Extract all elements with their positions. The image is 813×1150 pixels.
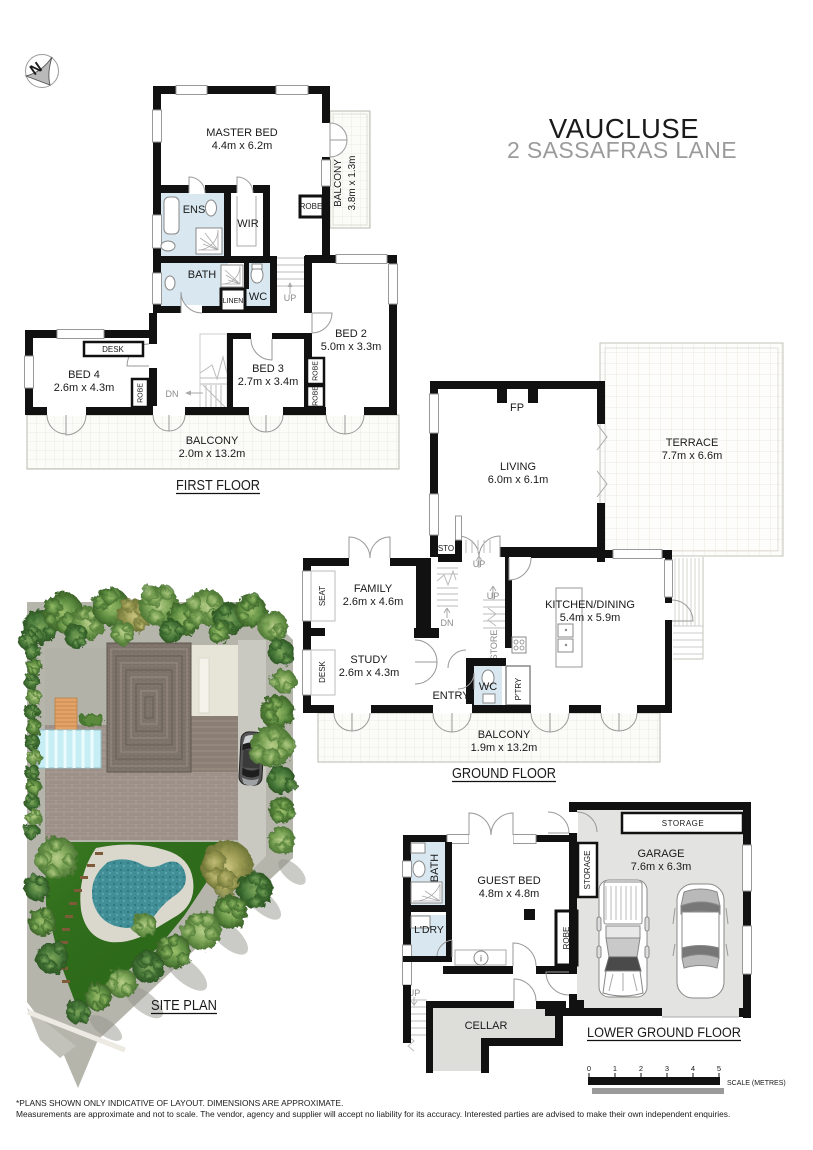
svg-text:LOWER GROUND FLOOR: LOWER GROUND FLOOR <box>587 1024 741 1040</box>
svg-text:WC: WC <box>249 291 267 303</box>
svg-text:0: 0 <box>587 1064 591 1073</box>
svg-text:SCALE (METRES): SCALE (METRES) <box>727 1080 786 1087</box>
svg-text:BALCONY: BALCONY <box>186 435 239 447</box>
svg-text:2: 2 <box>639 1064 643 1073</box>
svg-text:Measurements are approximate a: Measurements are approximate and not to … <box>16 1109 730 1119</box>
svg-text:BALCONY: BALCONY <box>333 159 344 207</box>
svg-text:ENTRY: ENTRY <box>432 690 470 702</box>
svg-text:ROBE: ROBE <box>313 386 320 406</box>
svg-text:ROBE: ROBE <box>313 361 320 381</box>
svg-text:ENS: ENS <box>183 204 206 216</box>
svg-text:7.7m x 6.6m: 7.7m x 6.6m <box>662 450 723 462</box>
svg-text:STORAGE: STORAGE <box>583 851 592 890</box>
svg-text:GROUND FLOOR: GROUND FLOOR <box>452 765 556 782</box>
svg-text:BATH: BATH <box>429 854 441 883</box>
svg-text:DESK: DESK <box>102 345 124 354</box>
svg-text:2.6m x 4.6m: 2.6m x 4.6m <box>343 596 404 608</box>
svg-text:3: 3 <box>665 1064 669 1073</box>
svg-text:*PLANS SHOWN ONLY INDICATIVE O: *PLANS SHOWN ONLY INDICATIVE OF LAYOUT. … <box>16 1098 343 1108</box>
svg-text:1: 1 <box>613 1064 617 1073</box>
svg-text:2.0m x 13.2m: 2.0m x 13.2m <box>179 448 246 460</box>
svg-text:WIR: WIR <box>237 218 258 230</box>
svg-text:DESK: DESK <box>318 660 327 682</box>
svg-text:5.0m x 3.3m: 5.0m x 3.3m <box>321 341 382 353</box>
svg-text:4.8m x 4.8m: 4.8m x 4.8m <box>479 888 540 900</box>
svg-text:i: i <box>480 954 482 964</box>
svg-text:1.9m x 13.2m: 1.9m x 13.2m <box>471 742 538 754</box>
svg-text:7.6m x 6.3m: 7.6m x 6.3m <box>631 861 692 873</box>
svg-text:2.7m x 3.4m: 2.7m x 3.4m <box>238 376 299 388</box>
svg-text:TERRACE: TERRACE <box>666 437 719 449</box>
svg-text:CELLAR: CELLAR <box>465 1020 508 1032</box>
svg-text:DN: DN <box>166 389 179 399</box>
svg-text:ROBE: ROBE <box>138 383 145 403</box>
svg-text:L'DRY: L'DRY <box>414 924 444 936</box>
svg-text:3.8m x 1.3m: 3.8m x 1.3m <box>347 155 358 210</box>
svg-text:5.4m x 5.9m: 5.4m x 5.9m <box>560 612 621 624</box>
svg-text:KITCHEN/DINING: KITCHEN/DINING <box>545 599 635 611</box>
svg-text:GARAGE: GARAGE <box>637 848 684 860</box>
svg-text:5: 5 <box>717 1064 721 1073</box>
svg-text:SEAT: SEAT <box>318 586 327 606</box>
svg-text:2.6m x 4.3m: 2.6m x 4.3m <box>54 382 115 394</box>
svg-text:DN: DN <box>441 618 454 628</box>
svg-text:STORAGE: STORAGE <box>662 819 704 828</box>
svg-text:2 SASSAFRAS LANE: 2 SASSAFRAS LANE <box>507 137 737 163</box>
svg-text:BED 3: BED 3 <box>252 363 284 375</box>
svg-text:STORE: STORE <box>489 630 499 661</box>
svg-text:6.0m x 6.1m: 6.0m x 6.1m <box>488 474 549 486</box>
svg-text:LIVING: LIVING <box>500 461 536 473</box>
svg-text:BALCONY: BALCONY <box>478 729 531 741</box>
svg-text:FIRST FLOOR: FIRST FLOOR <box>176 477 260 494</box>
svg-text:UP: UP <box>284 293 297 303</box>
svg-text:SITE PLAN: SITE PLAN <box>151 997 217 1014</box>
svg-text:4: 4 <box>691 1064 695 1073</box>
svg-text:STO: STO <box>438 544 454 553</box>
svg-text:GUEST BED: GUEST BED <box>477 875 540 887</box>
svg-text:ROBE: ROBE <box>300 202 323 211</box>
svg-text:MASTER BED: MASTER BED <box>206 127 278 139</box>
svg-text:P'TRY: P'TRY <box>514 677 523 700</box>
svg-text:UP: UP <box>487 591 500 601</box>
svg-text:WC: WC <box>479 681 497 693</box>
svg-text:2.6m x 4.3m: 2.6m x 4.3m <box>339 667 400 679</box>
svg-text:BED 2: BED 2 <box>335 328 367 340</box>
svg-text:BED 4: BED 4 <box>68 369 100 381</box>
svg-text:BATH: BATH <box>188 269 217 281</box>
svg-text:FAMILY: FAMILY <box>354 583 393 595</box>
svg-text:LINEN: LINEN <box>223 298 244 305</box>
svg-text:4.4m x 6.2m: 4.4m x 6.2m <box>212 140 273 152</box>
svg-text:FP: FP <box>510 402 524 414</box>
svg-text:STUDY: STUDY <box>350 654 388 666</box>
